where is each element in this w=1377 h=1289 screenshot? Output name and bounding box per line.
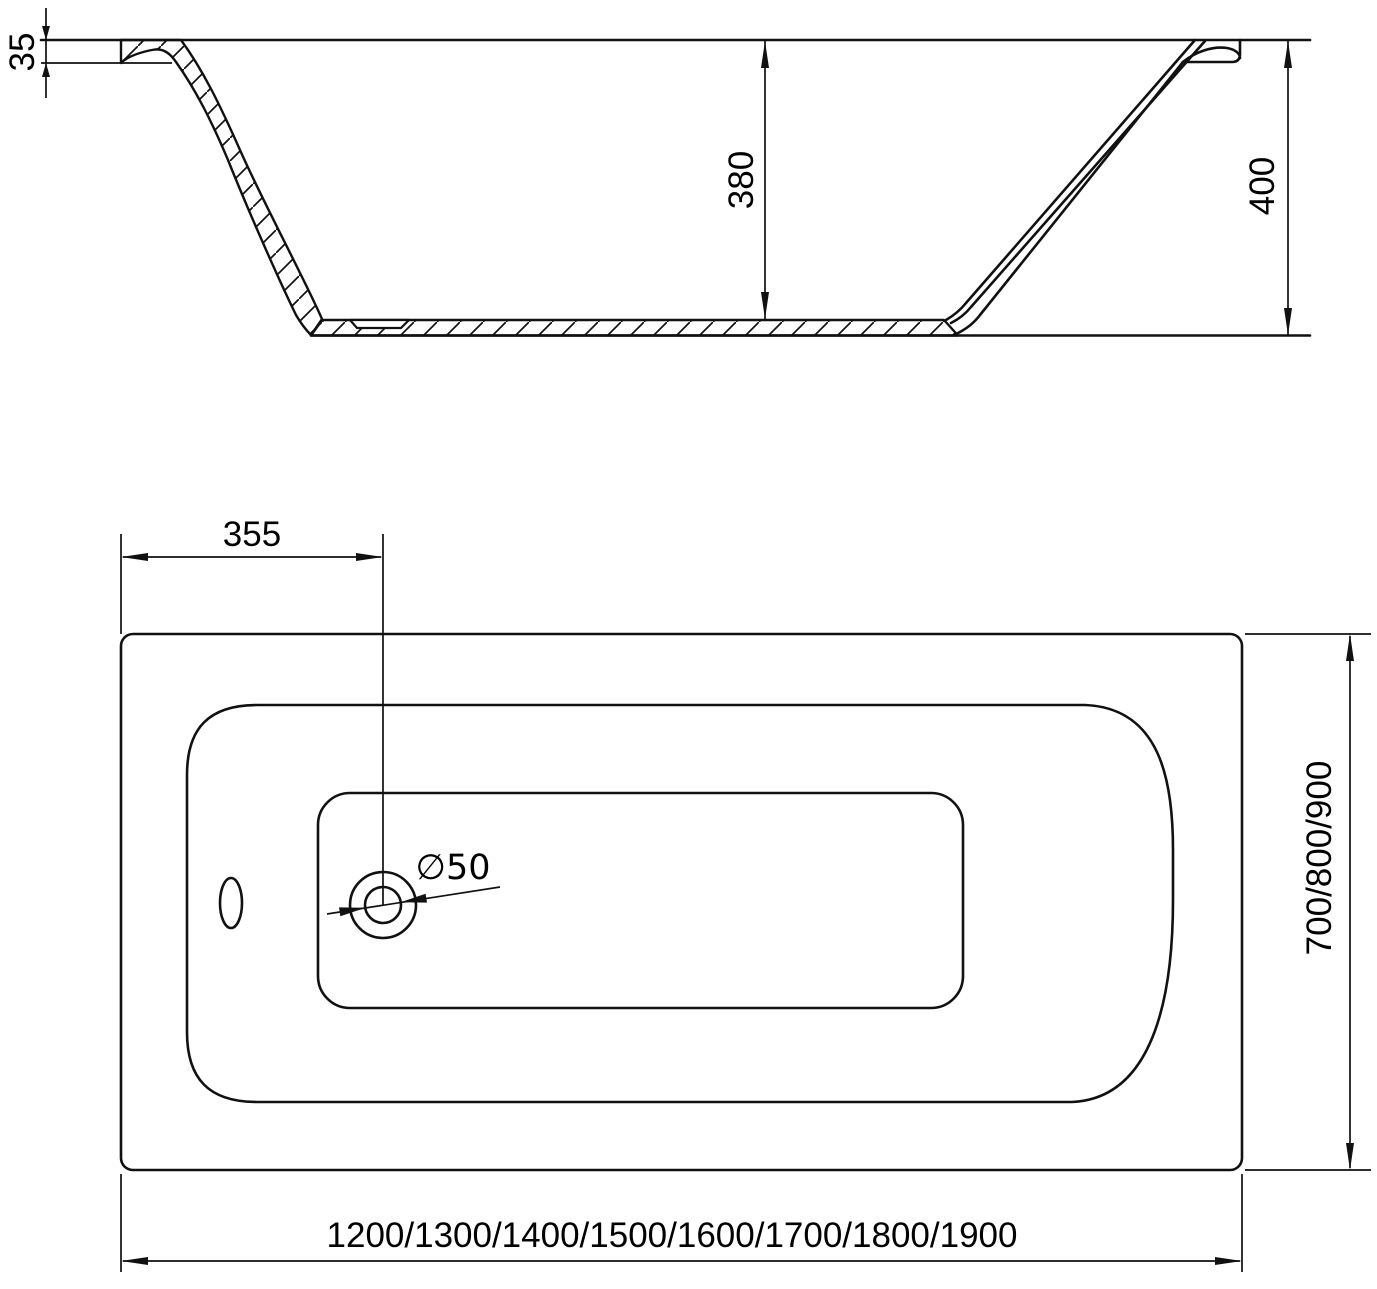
technical-drawing-page: 35 380 400 [0, 0, 1377, 1289]
dim-rim-thickness: 35 [3, 8, 50, 98]
bathtub-drawing: 35 380 400 [0, 0, 1377, 1289]
dim-inner-depth-label: 380 [722, 151, 761, 209]
dim-length-options-label: 1200/1300/1400/1500/1600/1700/1800/1900 [327, 1216, 1018, 1255]
dim-overall-height-label: 400 [1243, 157, 1282, 215]
side-view: 35 380 400 [3, 8, 1310, 336]
dim-drain-diameter-label: ∅50 [415, 848, 490, 888]
dim-width-options: 700/800/900 [1245, 634, 1371, 1170]
dim-drain-offset-label: 355 [223, 515, 281, 554]
left-wall-section [121, 40, 322, 335]
tub-outer-edge-plan [121, 634, 1242, 1170]
dim-length-options: 1200/1300/1400/1500/1600/1700/1800/1900 [121, 1174, 1242, 1272]
dim-rim-thickness-label: 35 [3, 33, 42, 72]
dim-width-options-label: 700/800/900 [1300, 761, 1339, 956]
plan-view: 355 ∅50 700/800/900 1200/1300/1400/1500/… [121, 515, 1371, 1272]
dim-drain-offset: 355 [121, 515, 383, 634]
drain-recess [350, 320, 409, 328]
tub-inner-rim-plan [187, 705, 1173, 1102]
overflow-hole [220, 878, 242, 928]
dim-drain-diameter: ∅50 [327, 848, 500, 916]
right-wall-lines [946, 40, 1205, 334]
dim-overall-height: 400 [1243, 41, 1292, 335]
dim-inner-depth: 380 [722, 41, 769, 319]
